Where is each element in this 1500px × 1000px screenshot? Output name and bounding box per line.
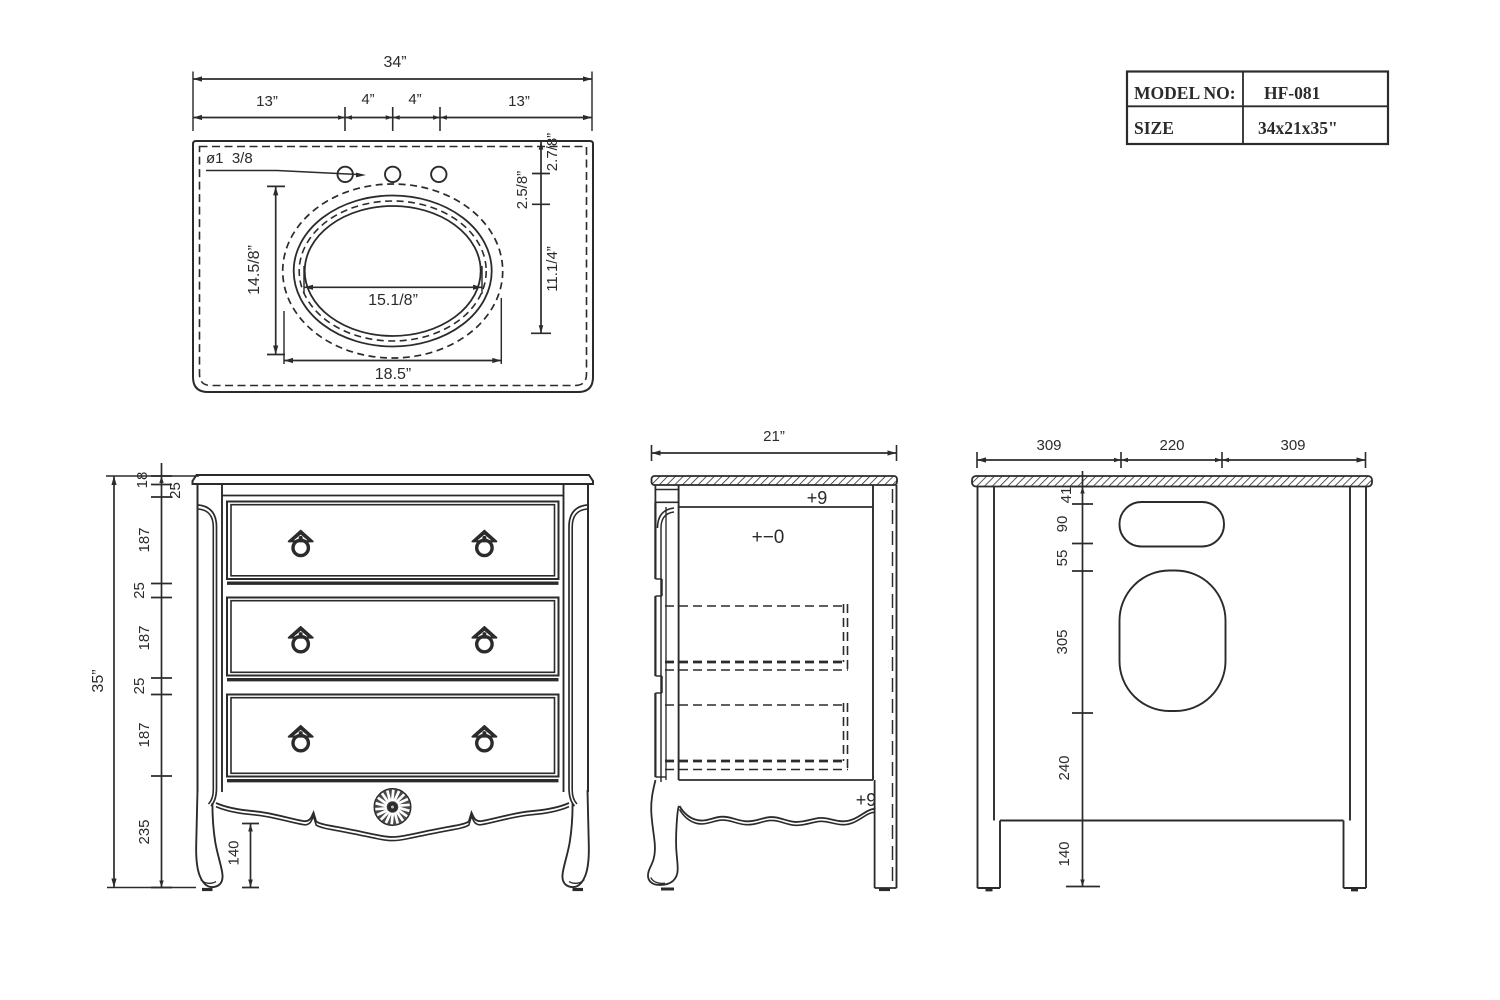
svg-text:25: 25	[131, 582, 148, 599]
svg-text:+9: +9	[807, 488, 828, 508]
svg-text:13”: 13”	[508, 93, 530, 110]
svg-text:235: 235	[136, 819, 153, 844]
svg-text:187: 187	[136, 722, 153, 747]
svg-text:MODEL NO:: MODEL NO:	[1134, 83, 1236, 103]
svg-text:11.1/4”: 11.1/4”	[544, 246, 561, 292]
svg-text:34”: 34”	[383, 54, 406, 71]
svg-text:HF-081: HF-081	[1264, 83, 1320, 103]
svg-text:+9: +9	[856, 790, 877, 810]
svg-text:41: 41	[1058, 487, 1075, 504]
svg-text:140: 140	[226, 840, 243, 865]
svg-text:35”: 35”	[90, 669, 107, 692]
svg-text:34x21x35": 34x21x35"	[1258, 118, 1338, 138]
svg-text:+−0: +−0	[752, 527, 785, 548]
svg-text:305: 305	[1054, 629, 1071, 654]
svg-text:14.5/8”: 14.5/8”	[246, 245, 263, 295]
svg-text:ø1 3/8: ø1 3/8	[206, 150, 253, 167]
svg-text:18.5”: 18.5”	[375, 366, 411, 383]
svg-text:309: 309	[1036, 437, 1061, 454]
svg-text:13”: 13”	[256, 93, 278, 110]
svg-text:187: 187	[136, 527, 153, 552]
svg-text:2.7/8”: 2.7/8”	[544, 133, 561, 171]
svg-text:25: 25	[131, 678, 148, 695]
svg-text:4”: 4”	[361, 91, 374, 108]
svg-text:309: 309	[1280, 437, 1305, 454]
svg-text:18: 18	[134, 472, 151, 489]
svg-text:15.1/8”: 15.1/8”	[368, 292, 418, 309]
svg-text:55: 55	[1054, 550, 1071, 567]
svg-text:2.5/8”: 2.5/8”	[514, 171, 531, 209]
svg-text:187: 187	[136, 625, 153, 650]
svg-text:90: 90	[1054, 516, 1071, 533]
svg-text:21”: 21”	[763, 428, 785, 445]
svg-text:140: 140	[1056, 841, 1073, 866]
svg-text:240: 240	[1056, 755, 1073, 780]
svg-text:SIZE: SIZE	[1134, 118, 1174, 138]
svg-text:25: 25	[167, 482, 184, 499]
svg-text:220: 220	[1159, 437, 1184, 454]
svg-text:4”: 4”	[408, 91, 421, 108]
